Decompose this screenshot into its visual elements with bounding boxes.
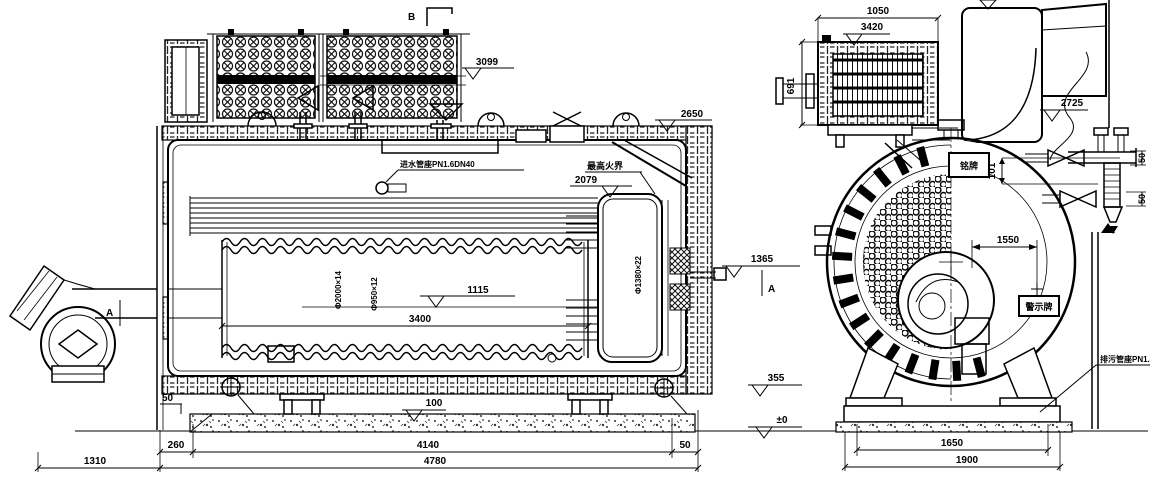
- bottom-insulation: [162, 376, 686, 394]
- fire-limit-label: 最高火界: [587, 160, 623, 171]
- foundation-left: [190, 414, 695, 432]
- dim-260: 260: [168, 440, 185, 451]
- elev-2725: 2725: [1061, 98, 1084, 109]
- dim-50-right: 50: [679, 440, 691, 451]
- dim-691: 691: [786, 77, 797, 94]
- steam-dome: [516, 130, 546, 142]
- elev-3420: 3420: [861, 22, 884, 33]
- elev-1365: 1365: [751, 254, 774, 265]
- rear-tube-dim-label: Φ1380×22: [634, 255, 643, 293]
- section-marker-a-left: A: [106, 308, 113, 319]
- foundation-right: [836, 422, 1072, 432]
- section-marker-b: B: [408, 12, 415, 23]
- dim-1650: 1650: [941, 438, 964, 449]
- elev-355: 355: [768, 373, 785, 384]
- dim-1050: 1050: [867, 6, 890, 17]
- nameplate-label: 铭牌: [960, 160, 978, 171]
- dim-4140: 4140: [417, 440, 440, 451]
- economizer: [165, 29, 470, 140]
- blowdown-label: 排污管座PN1.6: [1100, 354, 1150, 364]
- dim-50-lower: 50: [1137, 194, 1147, 204]
- dim-4780: 4780: [424, 456, 447, 467]
- main-valve-seat: [550, 126, 584, 142]
- dim-50-foundation: 50: [162, 393, 174, 404]
- dim-1550: 1550: [997, 235, 1020, 246]
- burner-assembly: [10, 266, 157, 382]
- fan-impeller-icon: [59, 330, 97, 358]
- elev-2650: 2650: [681, 109, 704, 120]
- elev-1115: 1115: [467, 285, 489, 296]
- blowdown-pipe: [1092, 223, 1115, 429]
- elev-2079: 2079: [575, 175, 598, 186]
- economizer-end: [776, 35, 958, 168]
- feedwater-label: 进水管座PN1.6DN40: [400, 159, 475, 169]
- end-view: 1050 3420 691 2725 铭牌 101 50 50: [776, 0, 1150, 471]
- dim-50-upper: 50: [1137, 153, 1147, 163]
- elev-100: 100: [426, 398, 443, 409]
- furnace-dim-label: Φ950×12: [370, 277, 379, 311]
- section-marker-a-right: A: [768, 284, 775, 295]
- fan-flue: [962, 0, 1109, 160]
- warning-sign-label: 警示牌: [1025, 301, 1052, 312]
- boiler-drawing-canvas: B 3099 2650 进水管座PN1.6DN40 最高火界 2079 Φ200…: [0, 0, 1150, 477]
- shell-dim-label: Φ2000×14: [334, 270, 343, 308]
- elev-zero: ±0: [776, 415, 787, 426]
- dim-3400: 3400: [409, 314, 432, 325]
- dim-1900: 1900: [956, 455, 979, 466]
- dim-101: 101: [987, 162, 998, 179]
- boiler-drawing: B 3099 2650 进水管座PN1.6DN40 最高火界 2079 Φ200…: [0, 0, 1150, 477]
- dim-1310: 1310: [84, 456, 107, 467]
- elev-3099: 3099: [476, 57, 499, 68]
